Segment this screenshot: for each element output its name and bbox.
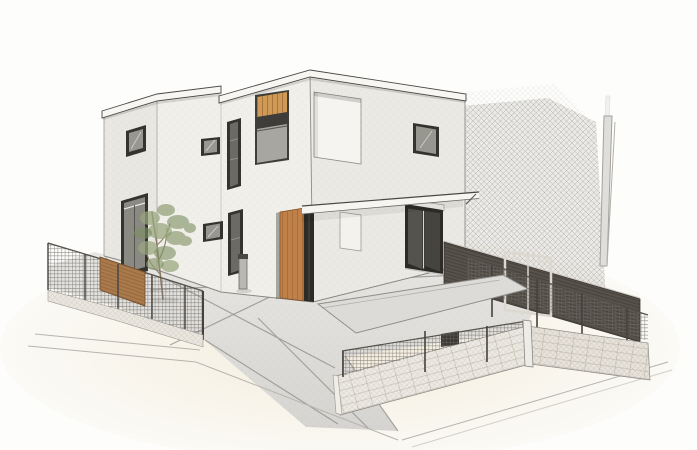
balcony-opening	[314, 92, 361, 164]
foliage-blob	[184, 223, 196, 233]
bollard-shadow	[236, 289, 252, 293]
foliage-blob	[146, 258, 164, 270]
sliding-door-glass-left	[408, 209, 422, 270]
foliage-blob	[161, 260, 179, 272]
foliage-blob	[134, 227, 152, 239]
foliage-blob	[140, 211, 160, 225]
bollard-cap	[238, 254, 248, 259]
balcony-recess	[314, 92, 361, 164]
foliage-blob	[157, 204, 175, 216]
wood-louver-niche	[255, 90, 289, 165]
door-plank-lines	[280, 208, 304, 301]
glass-pane	[204, 140, 217, 154]
architectural-sketch	[0, 0, 697, 450]
door-recess-shadow	[276, 212, 280, 299]
foliage-blob	[154, 246, 176, 260]
corner-post	[523, 320, 533, 367]
balcony-jamb-shadow	[314, 92, 318, 158]
bollard-body	[239, 258, 247, 289]
glass-pane	[230, 122, 238, 188]
sliding-door-glass-right	[425, 211, 440, 272]
foliage-blob	[178, 236, 192, 246]
